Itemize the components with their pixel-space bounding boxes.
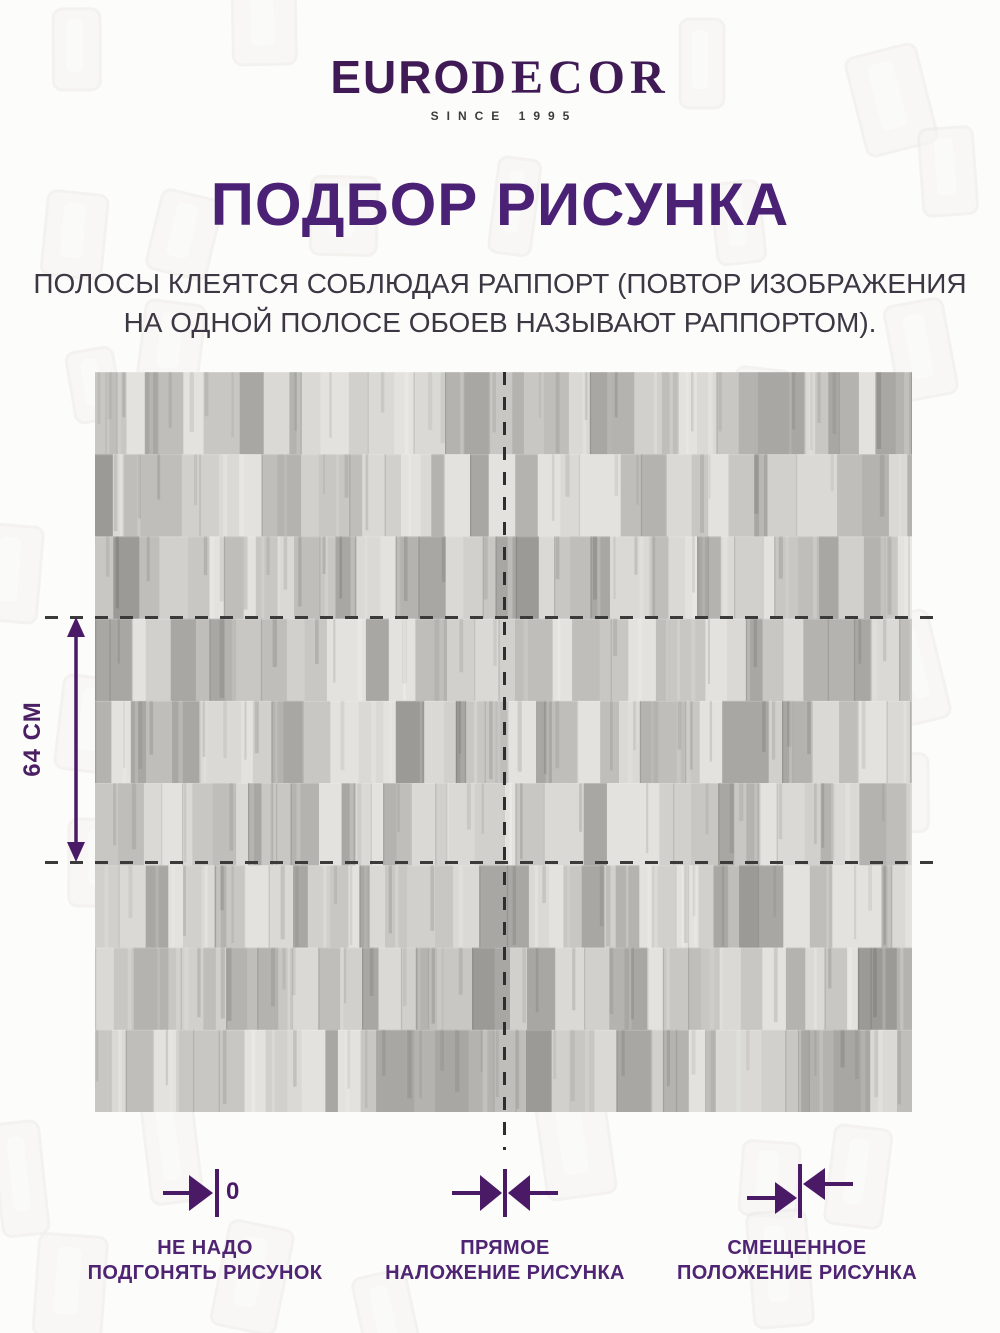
- rapport-size-label: 64 СМ: [19, 659, 49, 819]
- straight-pattern-match-label-line-1: ПРЯМОЕ: [460, 1237, 550, 1259]
- straight-pattern-match-label: ПРЯМОЕ НАЛОЖЕНИЕ РИСУНКА: [345, 1236, 665, 1286]
- offset-pattern-match-label: СМЕЩЕННОЕ ПОЛОЖЕНИЕ РИСУНКА: [637, 1236, 957, 1286]
- rapport-measure-arrow-icon: [59, 614, 93, 865]
- rapport-dashed-line-bottom: [45, 861, 943, 864]
- description-text: ПОЛОСЫ КЛЕЯТСЯ СОБЛЮДАЯ РАППОРТ (ПОВТОР …: [0, 264, 1000, 342]
- offset-pattern-match-label-line-2: ПОЛОЖЕНИЕ РИСУНКА: [677, 1262, 917, 1284]
- wallpaper-pattern-infographic: EURODECOR SINCE 1995 ПОДБОР РИСУНКА ПОЛО…: [0, 0, 1000, 1333]
- brand-logo-euro: EURO: [330, 51, 471, 103]
- brand-logo-decor: DECOR: [471, 51, 669, 104]
- brand-logo: EURODECOR: [0, 50, 1000, 105]
- offset-pattern-match-label-line-1: СМЕЩЕННОЕ: [727, 1237, 866, 1259]
- description-line-1: ПОЛОСЫ КЛЕЯТСЯ СОБЛЮДАЯ РАППОРТ (ПОВТОР …: [33, 268, 966, 299]
- no-pattern-match-icon: 0: [160, 1166, 240, 1220]
- straight-pattern-match-label-line-2: НАЛОЖЕНИЕ РИСУНКА: [385, 1262, 625, 1284]
- description-line-2: НА ОДНОЙ ПОЛОСЕ ОБОЕВ НАЗЫВАЮТ РАППОРТОМ…: [124, 307, 877, 338]
- straight-pattern-match-icon: [450, 1166, 560, 1220]
- seam-dashed-line-vertical: [503, 372, 506, 1150]
- no-pattern-match-label: НЕ НАДО ПОДГОНЯТЬ РИСУНОК: [45, 1236, 365, 1286]
- no-pattern-match-label-line-2: ПОДГОНЯТЬ РИСУНОК: [88, 1262, 323, 1284]
- zero-offset-label: 0: [226, 1178, 239, 1205]
- page-title: ПОДБОР РИСУНКА: [0, 170, 1000, 239]
- offset-pattern-match-icon: [745, 1162, 855, 1220]
- brand-tagline: SINCE 1995: [0, 109, 1000, 123]
- no-pattern-match-label-line-1: НЕ НАДО: [157, 1237, 253, 1259]
- rapport-dashed-line-top: [45, 616, 943, 619]
